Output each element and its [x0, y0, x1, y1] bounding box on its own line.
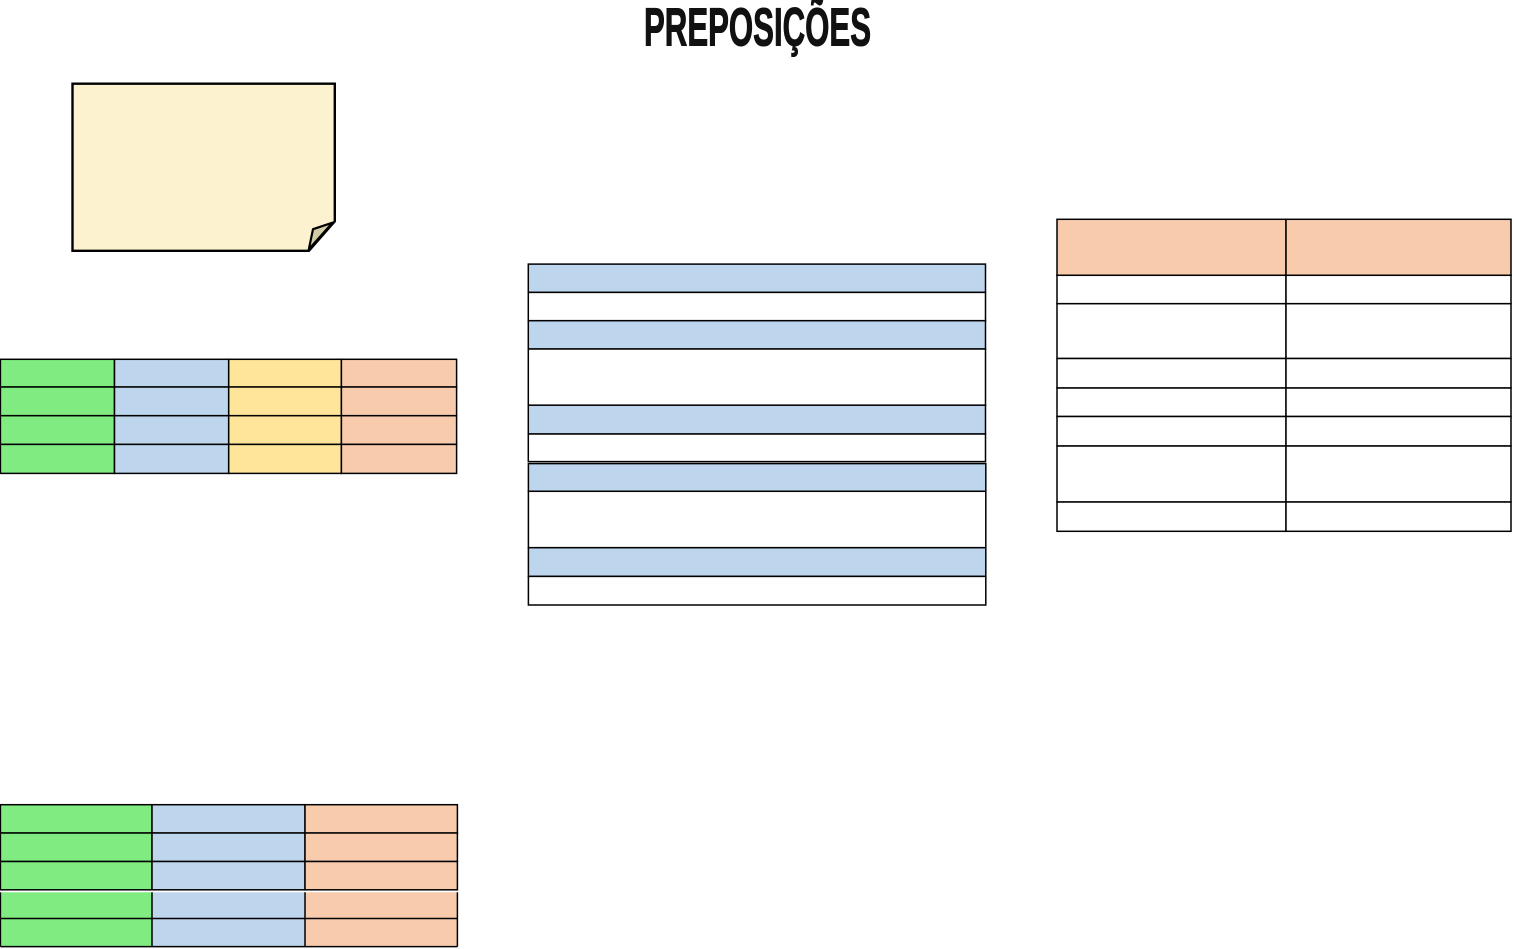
svg-text:PREPOSIÇÕES: PREPOSIÇÕES — [644, 0, 871, 57]
